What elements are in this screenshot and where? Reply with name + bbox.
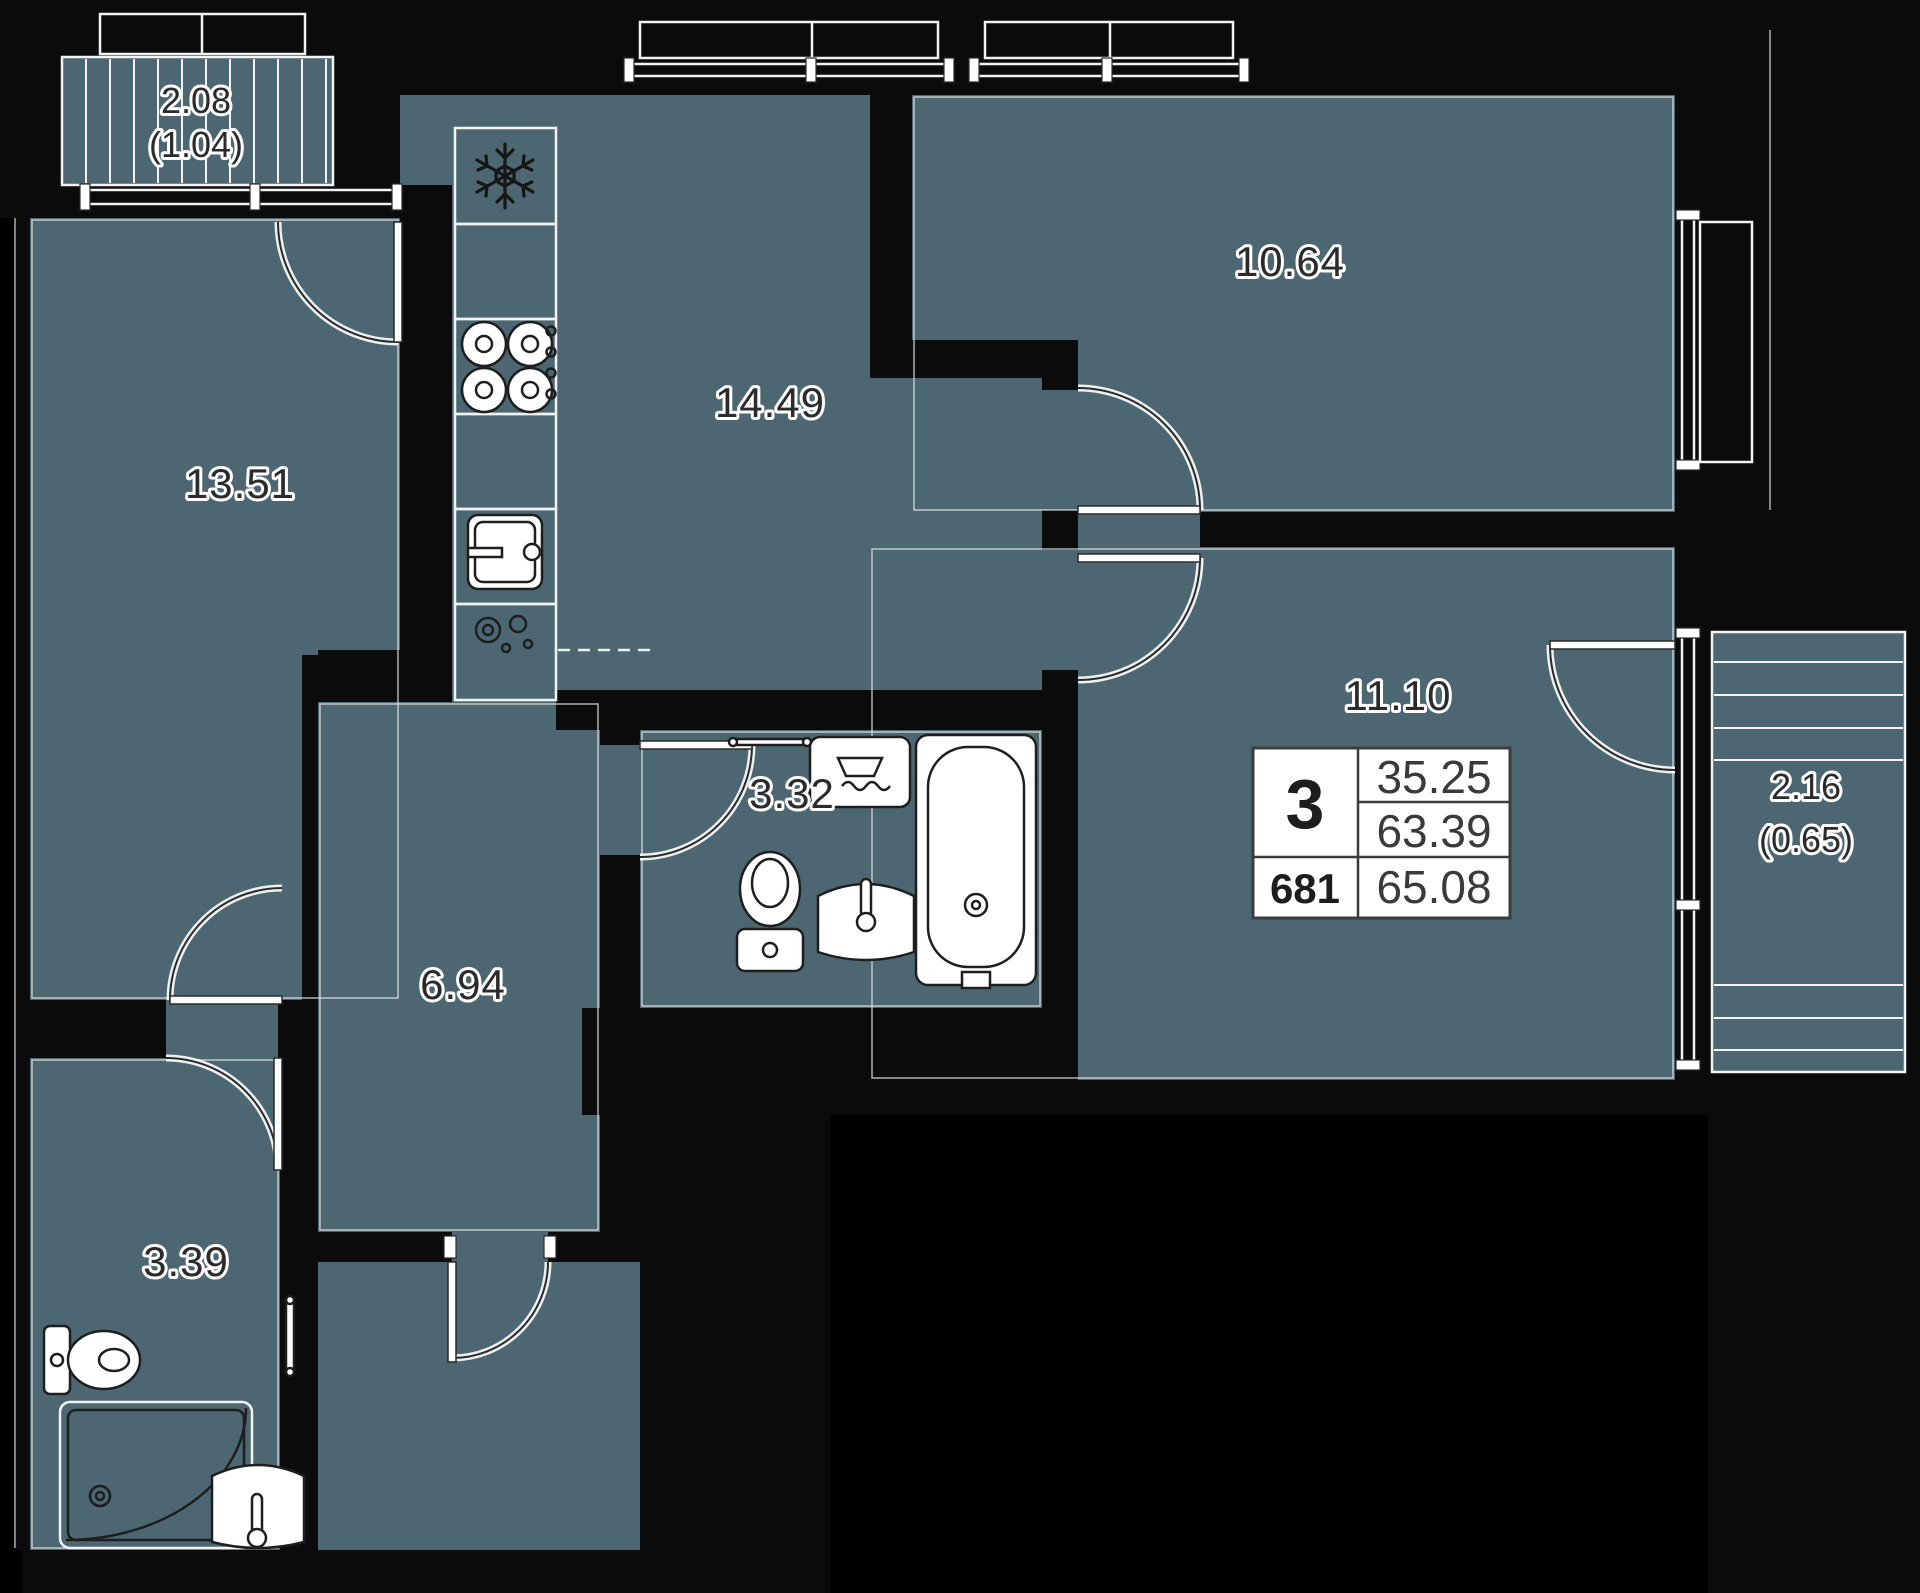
label-kitchen-area: 14.49 <box>715 379 825 426</box>
table-area-no-balcony: 63.39 <box>1376 805 1491 857</box>
wc-sink-icon <box>212 1465 304 1548</box>
label-bedroom1-area: 10.64 <box>1235 238 1345 285</box>
towel-rail-icon <box>729 738 811 746</box>
label-bedroom2-area: 11.10 <box>1345 672 1452 719</box>
table-rooms-count: 3 <box>1286 765 1325 843</box>
label-balcony-right-area: 2.16 <box>1771 766 1841 807</box>
table-unit-number: 681 <box>1270 865 1340 912</box>
wc-toilet-icon <box>44 1326 140 1394</box>
table-living-area: 35.25 <box>1376 751 1491 803</box>
floor-plan-canvas: 13.51 14.49 10.64 11.10 6.94 3.32 3.39 2… <box>0 0 1920 1593</box>
label-living-area: 13.51 <box>185 460 295 507</box>
bathtub-icon <box>916 735 1036 988</box>
toilet-icon <box>737 852 803 971</box>
label-hallway-area: 6.94 <box>420 961 506 1008</box>
floor-plan: 13.51 14.49 10.64 11.10 6.94 3.32 3.39 2… <box>0 0 1920 1593</box>
wc-towel-rail-icon <box>286 1296 294 1376</box>
label-balcony-right-reduced: (0.65) <box>1759 819 1853 860</box>
info-table: 3 35.25 63.39 681 65.08 <box>1253 748 1510 918</box>
label-balcony-tl-reduced: (1.04) <box>149 124 243 165</box>
label-balcony-tl-area: 2.08 <box>161 80 231 121</box>
kitchen-sink-icon <box>468 515 542 589</box>
label-wc-area: 3.39 <box>143 1238 229 1285</box>
bathroom-sink-icon <box>818 879 914 960</box>
table-total-area: 65.08 <box>1376 861 1491 913</box>
label-bathroom-area: 3.32 <box>749 770 835 817</box>
